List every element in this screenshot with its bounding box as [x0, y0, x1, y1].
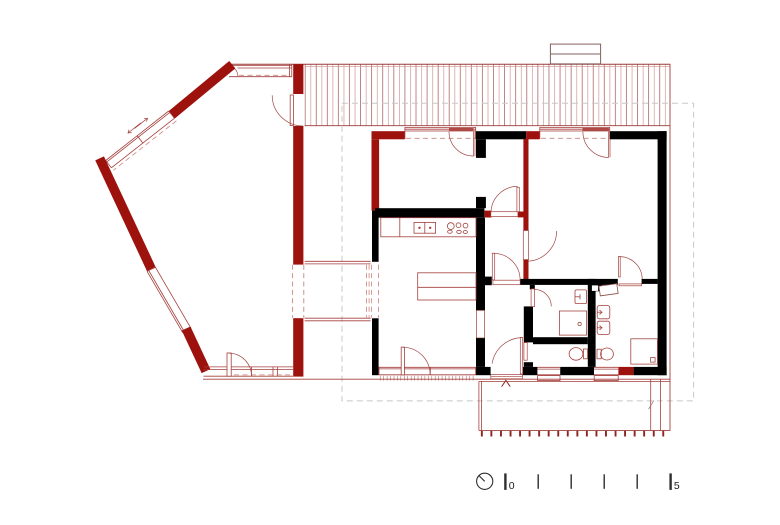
- svg-text:5: 5: [674, 480, 680, 492]
- svg-text:0: 0: [509, 480, 515, 492]
